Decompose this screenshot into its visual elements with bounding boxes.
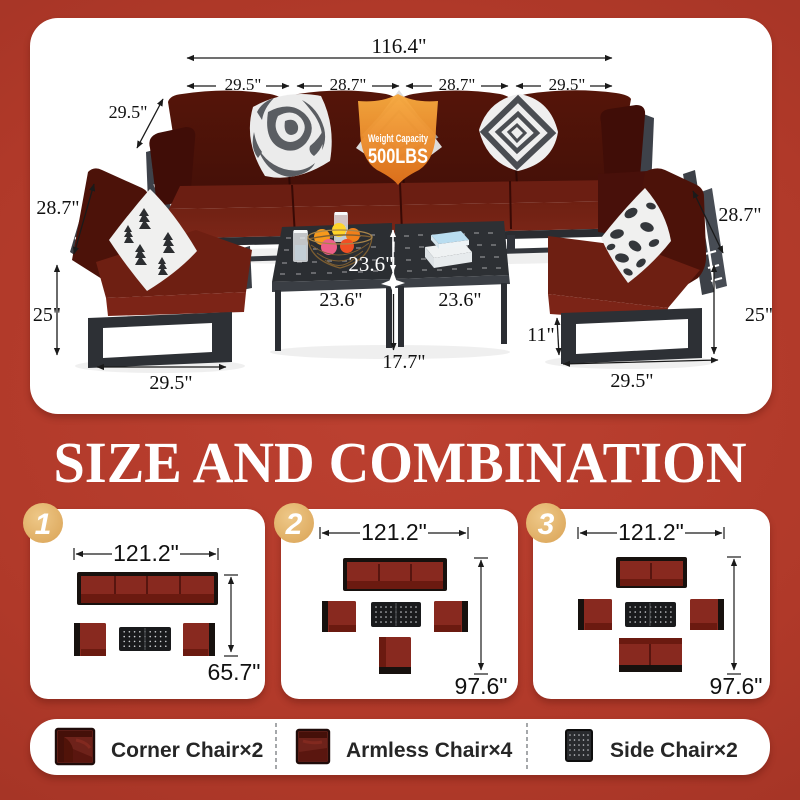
svg-text:65.7": 65.7" bbox=[208, 659, 261, 685]
svg-text:121.2": 121.2" bbox=[113, 540, 179, 566]
svg-text:1: 1 bbox=[35, 508, 52, 541]
svg-text:121.2": 121.2" bbox=[361, 519, 427, 545]
svg-text:2: 2 bbox=[285, 508, 303, 541]
svg-text:Corner Chair×2: Corner Chair×2 bbox=[111, 739, 263, 762]
svg-text:Armless Chair×4: Armless Chair×4 bbox=[346, 739, 513, 762]
svg-text:3: 3 bbox=[538, 508, 555, 541]
svg-text:121.2": 121.2" bbox=[618, 519, 684, 545]
svg-text:97.6": 97.6" bbox=[710, 673, 763, 699]
svg-text:Side Chair×2: Side Chair×2 bbox=[610, 739, 738, 762]
svg-text:97.6": 97.6" bbox=[455, 673, 508, 699]
